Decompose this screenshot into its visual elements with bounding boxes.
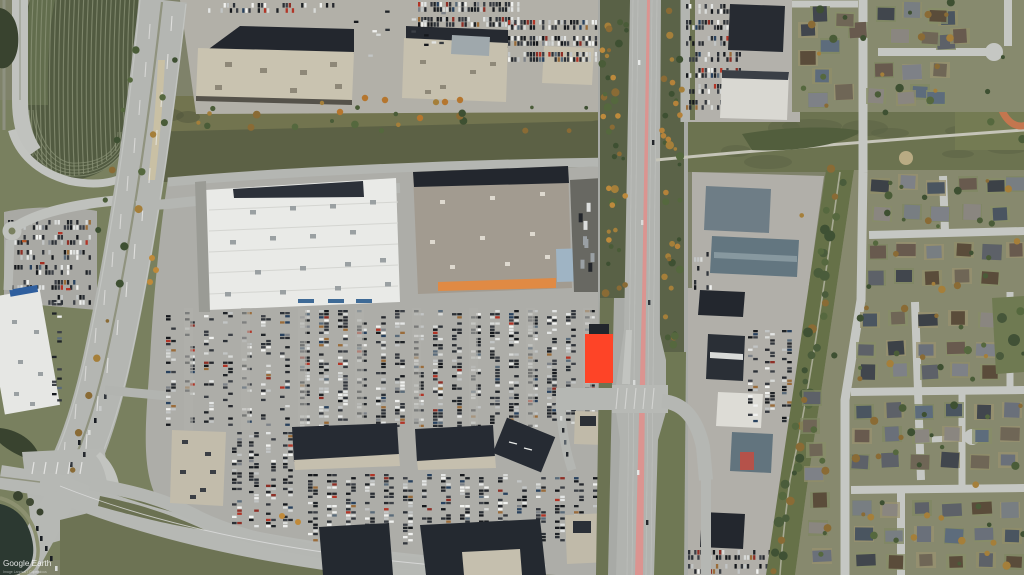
- svg-text:Image Landsat / Copernicus: Image Landsat / Copernicus: [3, 570, 47, 574]
- svg-text:Google Earth: Google Earth: [3, 559, 52, 568]
